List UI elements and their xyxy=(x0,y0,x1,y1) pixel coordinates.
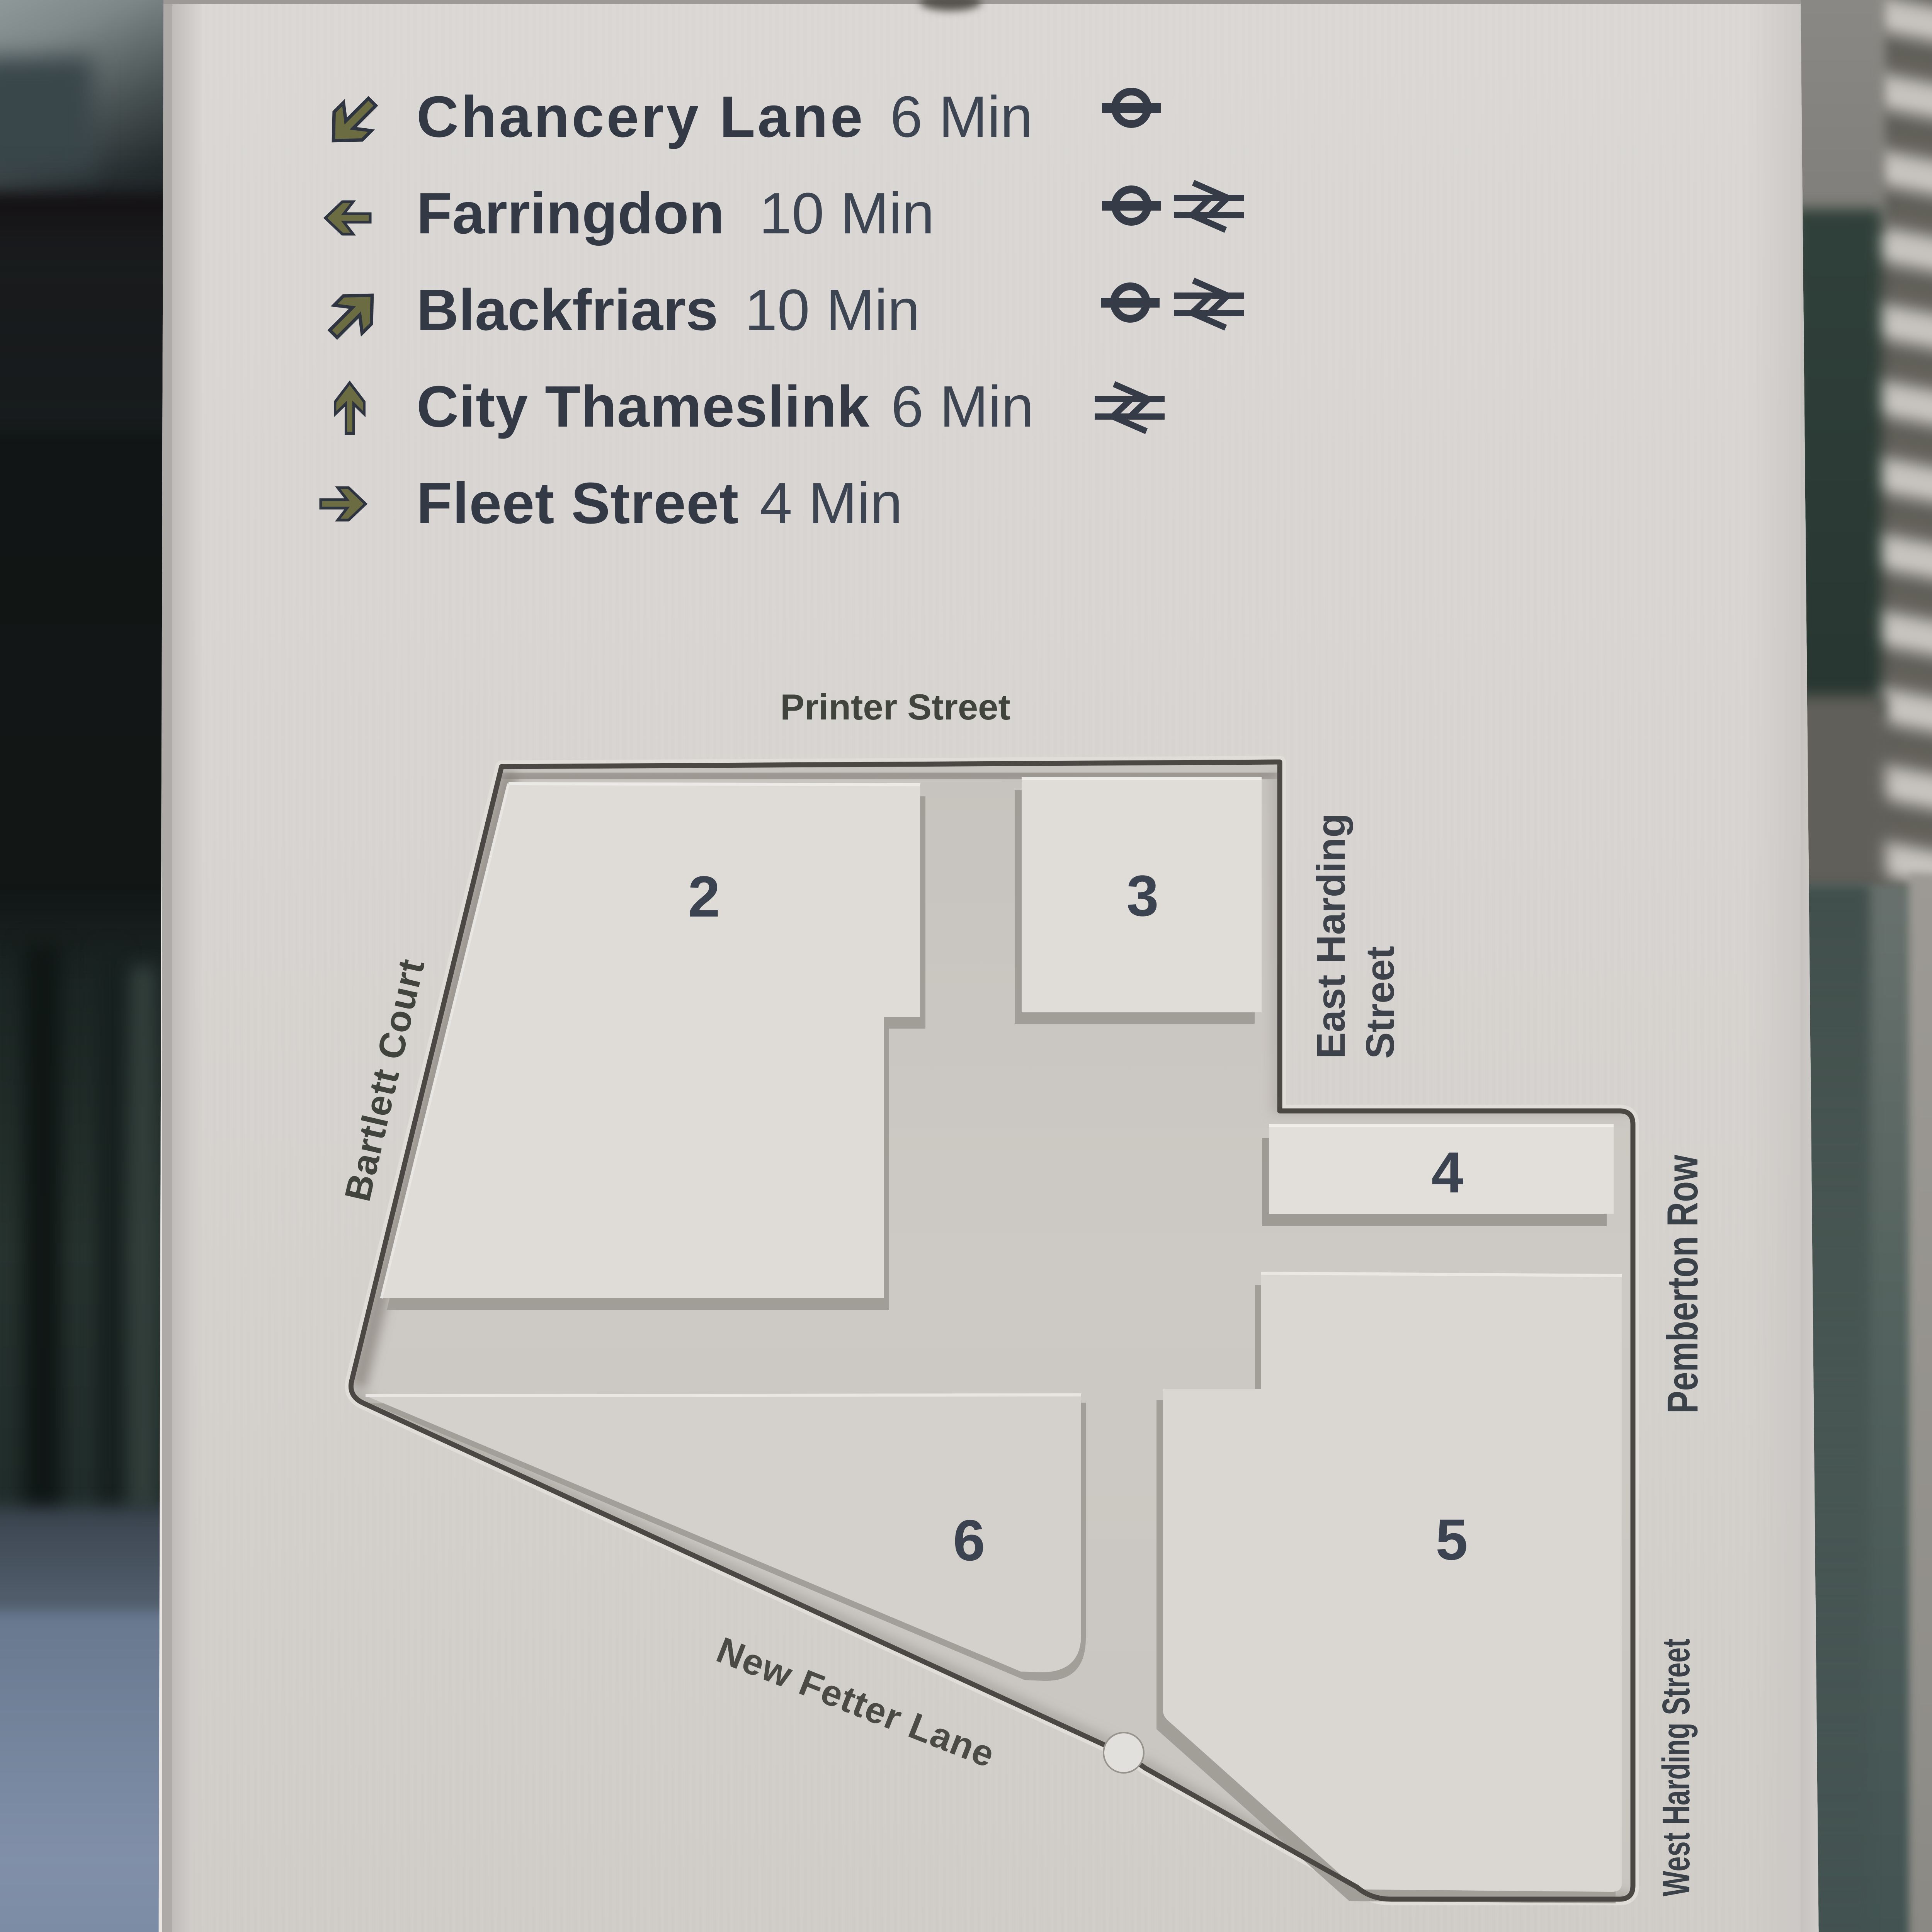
svg-text:Printer Street: Printer Street xyxy=(780,687,1010,727)
svg-text:6: 6 xyxy=(953,1508,985,1573)
svg-text:West Harding Street: West Harding Street xyxy=(1655,1638,1698,1896)
svg-text:East Harding: East Harding xyxy=(1309,813,1353,1059)
svg-text:Pemberton Row: Pemberton Row xyxy=(1659,1155,1707,1413)
svg-text:3: 3 xyxy=(1126,863,1158,928)
svg-text:Street: Street xyxy=(1358,946,1402,1059)
svg-text:4: 4 xyxy=(1431,1140,1463,1205)
svg-text:5: 5 xyxy=(1435,1507,1468,1572)
svg-text:2: 2 xyxy=(688,864,720,929)
